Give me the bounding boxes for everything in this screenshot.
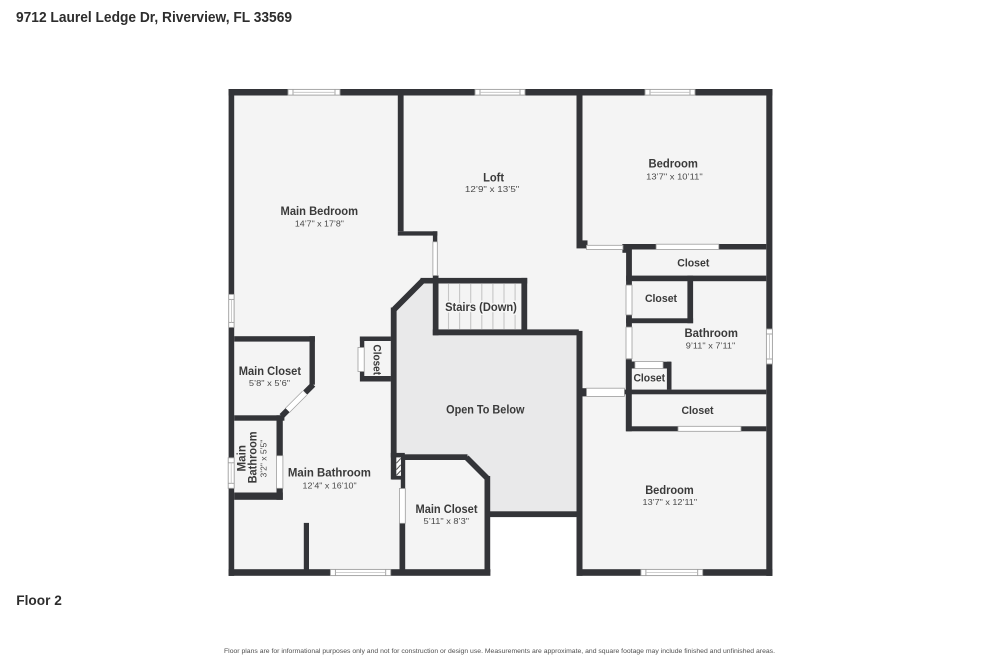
- svg-text:Floor 2: Floor 2: [16, 593, 62, 609]
- svg-text:Bathroom: Bathroom: [684, 327, 738, 340]
- svg-text:5’8" x 5’6": 5’8" x 5’6": [249, 378, 290, 388]
- svg-text:9712 Laurel Ledge Dr, Rivervie: 9712 Laurel Ledge Dr, Riverview, FL 3356…: [16, 10, 292, 26]
- svg-text:Closet: Closet: [633, 372, 665, 384]
- svg-text:Loft: Loft: [483, 172, 504, 185]
- svg-text:Main Bedroom: Main Bedroom: [281, 205, 359, 218]
- svg-text:12’9" x 13’5": 12’9" x 13’5": [465, 184, 519, 194]
- svg-text:3’2" x 5’5": 3’2" x 5’5": [258, 440, 268, 478]
- svg-text:13’7" x 12’11": 13’7" x 12’11": [643, 497, 698, 507]
- svg-text:Closet: Closet: [370, 345, 382, 376]
- svg-text:Main Closet: Main Closet: [239, 365, 301, 378]
- svg-text:Closet: Closet: [681, 405, 713, 417]
- svg-text:Closet: Closet: [645, 293, 677, 305]
- svg-text:Bedroom: Bedroom: [645, 484, 694, 497]
- svg-text:5’11" x 8’3": 5’11" x 8’3": [424, 516, 470, 526]
- svg-text:Floor plans are for informatio: Floor plans are for informational purpos…: [224, 648, 775, 655]
- svg-text:13’7" x 10’11": 13’7" x 10’11": [646, 172, 703, 182]
- svg-text:9’11" x 7’11": 9’11" x 7’11": [686, 340, 736, 350]
- svg-text:Bedroom: Bedroom: [649, 157, 698, 170]
- svg-text:Main Closet: Main Closet: [416, 503, 478, 516]
- svg-text:12’4" x 16’10": 12’4" x 16’10": [303, 481, 357, 491]
- svg-text:Main Bathroom: Main Bathroom: [288, 467, 371, 480]
- svg-text:Open To Below: Open To Below: [446, 403, 525, 416]
- svg-text:Closet: Closet: [677, 258, 709, 270]
- svg-text:Stairs (Down): Stairs (Down): [445, 301, 517, 314]
- svg-text:14’7" x 17’8": 14’7" x 17’8": [295, 219, 344, 229]
